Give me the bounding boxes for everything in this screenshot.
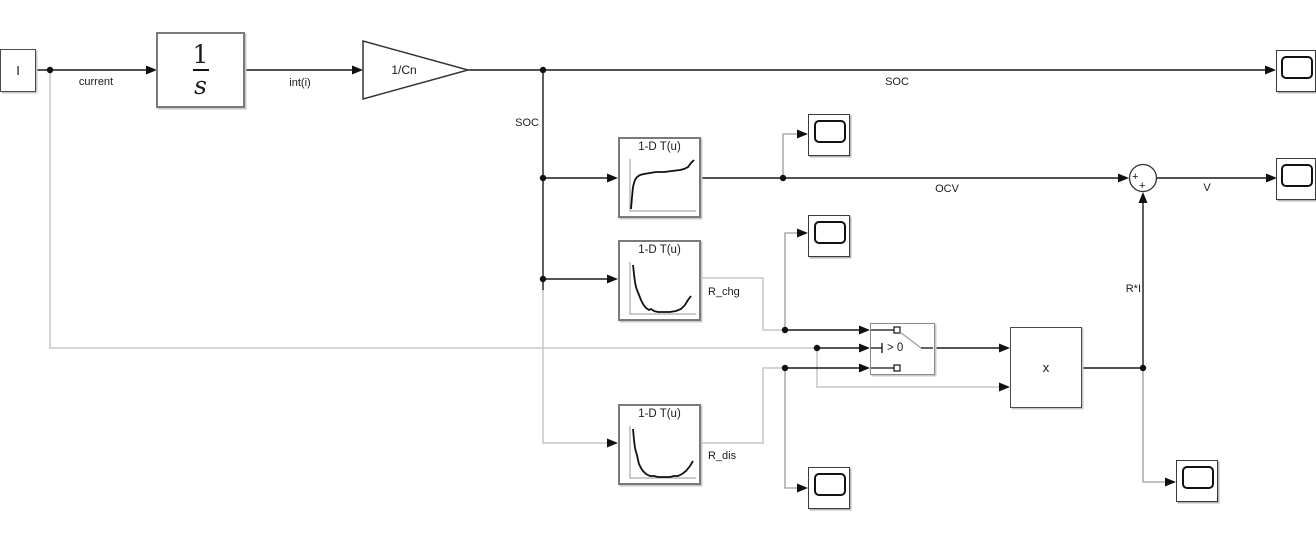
inport-block-I[interactable]: I — [0, 49, 36, 92]
signal-wire-black[interactable] — [36, 70, 1267, 368]
signal-label-rchg: R_chg — [708, 286, 768, 298]
signal-label-ri: R*I — [1091, 283, 1141, 295]
lookup-table-rdis-block[interactable]: 1-D T(u) — [618, 404, 701, 485]
scope-block-rchg[interactable] — [808, 215, 850, 257]
scope-screen-icon — [814, 473, 846, 496]
lookup-curve-plot — [624, 157, 698, 215]
signal-label-ocv: OCV — [917, 183, 977, 195]
scope-block-rdis[interactable] — [808, 467, 850, 509]
product-label: x — [1043, 360, 1050, 375]
plot-axes — [630, 262, 696, 314]
integrator-denominator: s — [194, 73, 207, 98]
scope-screen-icon — [1182, 466, 1214, 489]
arrowheads — [146, 66, 1277, 493]
sum-plus-left-sign: + — [1132, 171, 1138, 183]
signal-label-v: V — [1177, 182, 1237, 194]
plot-axes — [630, 159, 696, 211]
scope-block-ri[interactable] — [1176, 460, 1218, 502]
gain-block-label[interactable]: 1/Cn — [375, 64, 433, 76]
signal-label-soc-top: SOC — [867, 76, 927, 88]
lookup-curve-plot — [624, 260, 698, 318]
rdis-curve — [633, 429, 693, 477]
scope-screen-icon — [814, 221, 846, 244]
lookup-table-ocv-block[interactable]: 1-D T(u) — [618, 137, 701, 218]
switch-block[interactable]: > 0 — [870, 323, 935, 375]
integrator-block[interactable]: 1 s — [156, 32, 245, 108]
scope-screen-icon — [1281, 56, 1313, 79]
lookup-table-rchg-block[interactable]: 1-D T(u) — [618, 240, 701, 321]
simulink-diagram-canvas: + + I 1 s 1/Cn 1-D T(u) 1-D T(u) 1-D T(u… — [0, 0, 1316, 541]
branch-dots — [47, 67, 1146, 371]
sum-block-shape[interactable]: + + — [1130, 165, 1157, 193]
signal-label-current: current — [66, 76, 126, 88]
signal-label-int-i: int(i) — [270, 77, 330, 89]
signal-label-rdis: R_dis — [708, 450, 768, 462]
signal-label-soc-branch: SOC — [489, 117, 539, 129]
lookup-table-title: 1-D T(u) — [620, 408, 699, 420]
scope-block-soc[interactable] — [1276, 50, 1316, 92]
lookup-curve-plot — [624, 424, 698, 482]
sum-plus-bottom-sign: + — [1139, 180, 1145, 192]
lookup-table-title: 1-D T(u) — [620, 141, 699, 153]
rchg-curve — [633, 265, 691, 312]
scope-screen-icon — [1281, 164, 1313, 187]
product-block[interactable]: x — [1010, 327, 1082, 408]
scope-block-ocv[interactable] — [808, 114, 850, 156]
lookup-table-title: 1-D T(u) — [620, 244, 699, 256]
inport-label: I — [16, 63, 20, 78]
scope-block-v[interactable] — [1276, 158, 1316, 200]
switch-criterion-label: > 0 — [887, 342, 903, 354]
integrator-numerator: 1 — [193, 42, 209, 67]
scope-screen-icon — [814, 120, 846, 143]
ocv-curve — [631, 160, 694, 209]
